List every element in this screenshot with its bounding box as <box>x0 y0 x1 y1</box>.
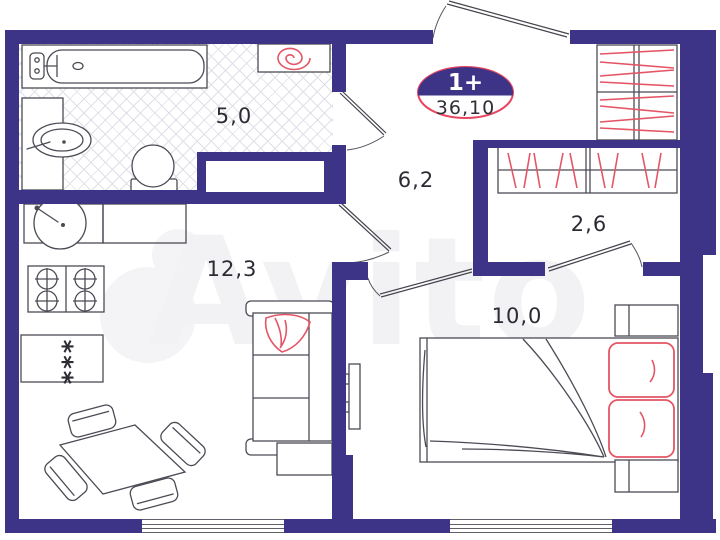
bed <box>420 338 678 462</box>
bedroom-door <box>368 269 472 297</box>
apartment-badge: 1+ 36,10 <box>413 62 518 124</box>
bed-pillows <box>609 343 674 457</box>
fridge-freezer-marking: *** <box>21 335 103 382</box>
wall-right <box>680 30 703 533</box>
wall-left <box>5 30 19 533</box>
kitchen-door <box>339 203 391 263</box>
wall-closet-south-left <box>488 262 545 276</box>
window-bedroom <box>450 519 612 533</box>
stove <box>28 266 104 312</box>
badge-rooms-count: 1+ <box>448 70 483 96</box>
bathroom-door <box>340 91 386 150</box>
wall-bathroom-east-upper <box>332 44 346 92</box>
label-bathroom-area: 5,0 <box>216 104 252 128</box>
wall-living-bedroom-lower <box>332 455 353 519</box>
wall-bedroom-north-west <box>332 262 368 280</box>
label-kitchen-living-area: 12,3 <box>207 257 258 281</box>
floor-plan: Avito <box>0 0 720 540</box>
wall-right-thick-top <box>703 30 716 255</box>
wall-bathroom-south <box>19 190 346 204</box>
closet-door <box>548 241 642 271</box>
wall-right-thick-bottom <box>702 373 713 533</box>
wall-living-bedroom <box>332 280 346 455</box>
wall-closet-west <box>473 142 488 276</box>
wall-bottom-left <box>5 519 142 533</box>
label-hallway-area: 6,2 <box>398 168 434 192</box>
ventilation-shaft <box>197 152 333 192</box>
coffee-table <box>277 443 332 475</box>
bathtub <box>22 45 207 88</box>
nightstand <box>615 305 678 336</box>
wall-bathroom-east-lower <box>332 145 346 203</box>
wall-bedroom-north-post <box>473 262 488 276</box>
sofa <box>246 301 334 455</box>
wardrobe-cabinet <box>597 45 677 140</box>
bathroom-sink <box>22 98 91 190</box>
entrance-door <box>433 1 569 38</box>
wall-bottom-right <box>612 519 716 533</box>
clothes-rail <box>498 147 677 193</box>
label-bedroom-area: 10,0 <box>492 304 543 328</box>
window-kitchen <box>142 519 284 533</box>
wall-bottom-middle <box>284 519 450 533</box>
label-wardrobe-room-area: 2,6 <box>571 212 607 236</box>
wall-closet-north <box>473 140 680 148</box>
toilet <box>131 145 177 193</box>
wall-top-left <box>5 30 433 44</box>
badge-total-area: 36,10 <box>436 97 495 119</box>
wall-closet-south-right <box>643 262 680 276</box>
washing-machine <box>258 44 330 72</box>
nightstand <box>615 460 678 492</box>
tv <box>344 364 360 429</box>
kitchen-sink <box>34 197 86 249</box>
dining-table <box>42 403 208 511</box>
